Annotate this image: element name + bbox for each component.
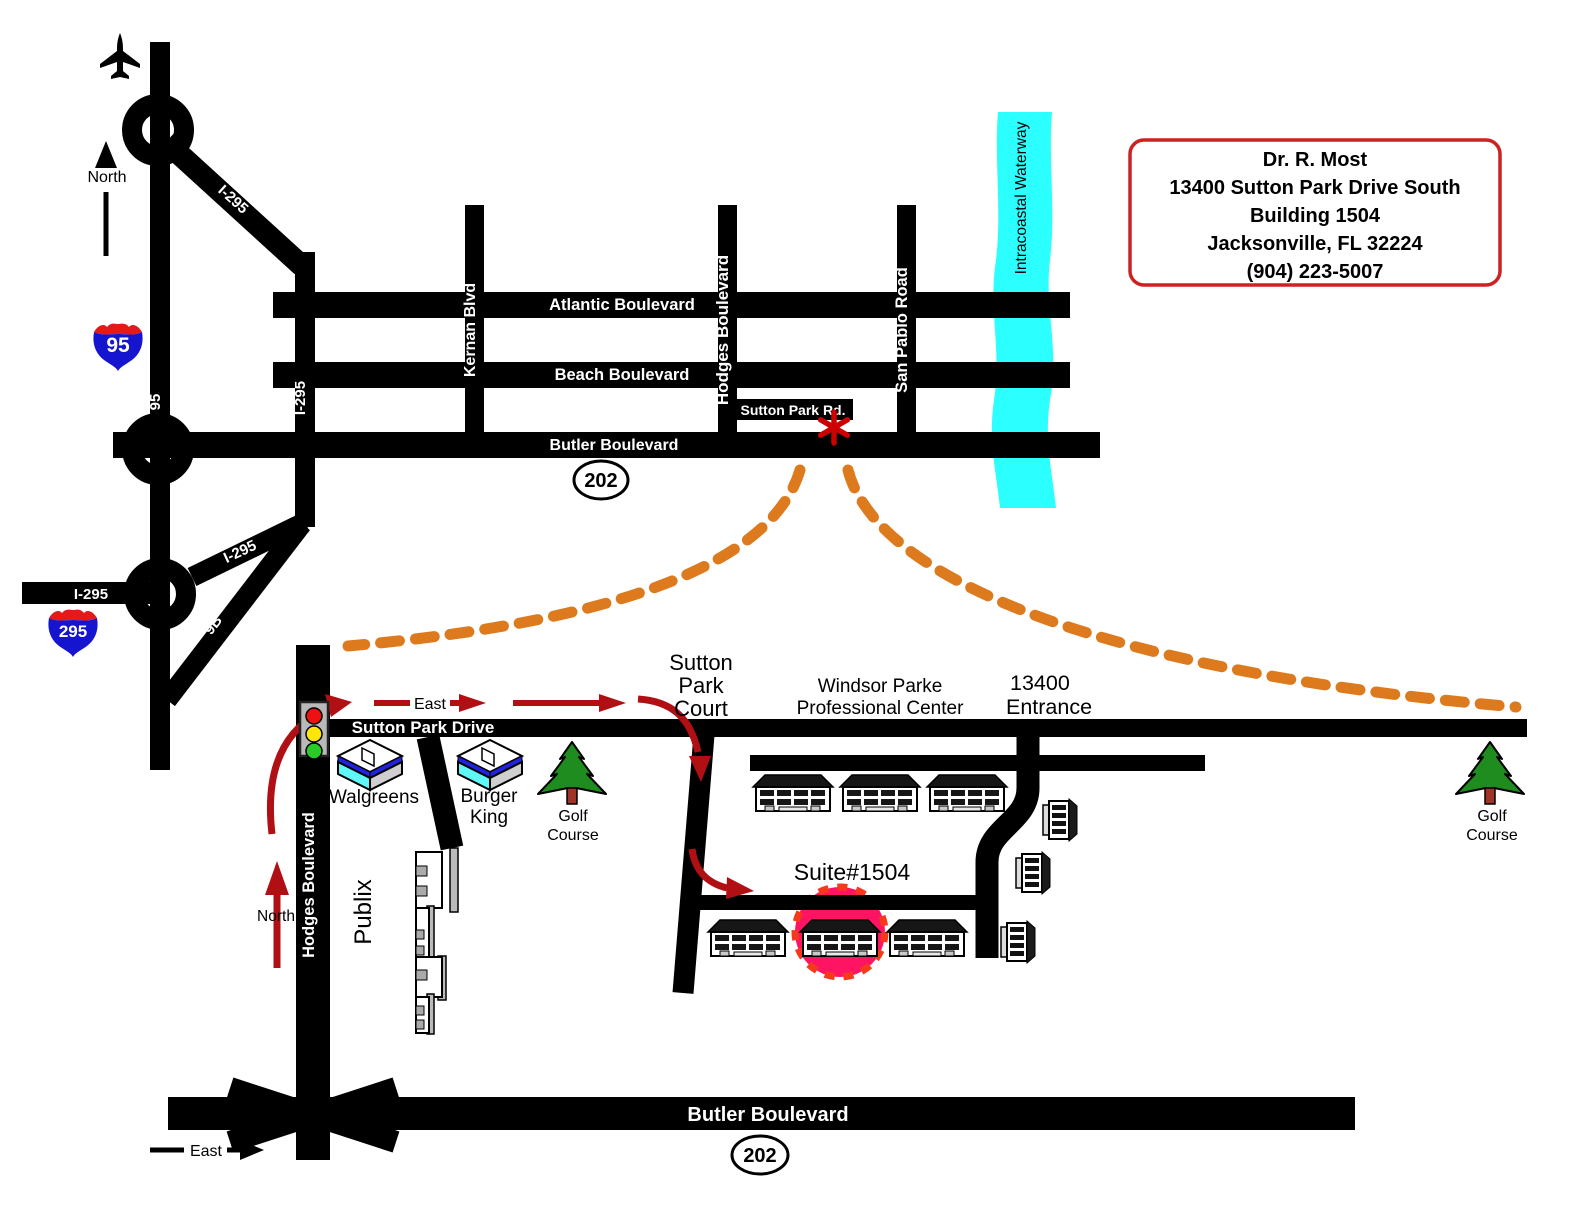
i95-road-label: 95: [147, 394, 164, 411]
i295-shield-number: 295: [59, 622, 87, 641]
san-pablo-road-label: San Pablo Road: [893, 267, 911, 393]
sutton-park-drive-label: Sutton Park Drive: [352, 718, 495, 737]
road-windsor-parke-internal-2: [690, 895, 988, 910]
burger-king-label-1: Burger: [460, 786, 518, 807]
info-doctor-name: Dr. R. Most: [1263, 149, 1368, 171]
i95-shield-number: 95: [106, 334, 130, 357]
directions-map: North 95 295 Atlantic Boulevard Beach Bo…: [0, 0, 1582, 1222]
entrance-label-2: Entrance: [1006, 695, 1092, 719]
butler-boulevard-lower-label: Butler Boulevard: [687, 1104, 848, 1126]
windsor-parke-label-2: Professional Center: [797, 698, 965, 719]
north-label: North: [87, 169, 126, 186]
golf-course-left-label-1: Golf: [558, 808, 588, 825]
east-label-top: East: [414, 696, 447, 713]
route-202-shield-upper: 202: [574, 461, 628, 499]
route-202-shield-lower: 202: [732, 1136, 788, 1174]
golf-course-right-label-2: Course: [1466, 827, 1518, 844]
traffic-light-red: [306, 708, 322, 724]
sutton-park-rd-label: Sutton Park Rd.: [740, 402, 845, 418]
info-building: Building 1504: [1250, 205, 1381, 227]
entrance-label-1: 13400: [1010, 671, 1070, 695]
office-building-small: [1016, 852, 1050, 894]
route-202-lower-label: 202: [743, 1145, 776, 1167]
east-label-bottom: East: [190, 1143, 223, 1160]
office-building: [753, 775, 833, 811]
info-city: Jacksonville, FL 32224: [1207, 233, 1423, 255]
beach-boulevard-label: Beach Boulevard: [555, 366, 690, 384]
hodges-boulevard-lower-label: Hodges Boulevard: [300, 812, 318, 958]
kernan-blvd-label: Kernan Blvd: [462, 283, 479, 377]
route-202-upper-label: 202: [584, 470, 617, 492]
office-building-small: [1043, 799, 1077, 841]
golf-course-right-label-1: Golf: [1477, 808, 1507, 825]
map-svg: North 95 295 Atlantic Boulevard Beach Bo…: [0, 0, 1582, 1222]
atlantic-boulevard-label: Atlantic Boulevard: [549, 296, 695, 314]
publix-label: Publix: [350, 879, 377, 944]
office-building: [840, 775, 920, 811]
traffic-light-icon: [300, 702, 328, 759]
walgreens-label: Walgreens: [329, 787, 419, 808]
sutton-park-court-label-3: Court: [674, 696, 728, 721]
info-phone: (904) 223-5007: [1247, 261, 1384, 283]
suite-1504-label: Suite#1504: [794, 859, 911, 885]
north-label-detail: North: [257, 908, 295, 925]
burger-king-label-2: King: [470, 807, 508, 828]
sutton-park-court-label-1: Sutton: [669, 650, 733, 675]
office-building: [887, 920, 967, 956]
traffic-light-yellow: [306, 726, 322, 742]
golf-course-left-label-2: Course: [547, 827, 599, 844]
butler-boulevard-upper-label: Butler Boulevard: [550, 437, 679, 454]
office-building-small: [1001, 921, 1035, 963]
windsor-parke-label-1: Windsor Parke: [818, 676, 943, 697]
intracoastal-waterway-label: Intracoastal Waterway: [1013, 121, 1030, 274]
road-windsor-parke-internal-1: [750, 755, 1205, 771]
office-building: [708, 920, 788, 956]
office-building-suite-1504: [800, 920, 880, 956]
i295-vertical-label: I-295: [292, 381, 309, 415]
info-address: 13400 Sutton Park Drive South: [1169, 177, 1460, 199]
sutton-park-court-label-2: Park: [678, 673, 724, 698]
office-building: [927, 775, 1007, 811]
i295-west-stub-label: I-295: [74, 586, 108, 603]
traffic-light-green: [306, 743, 322, 759]
office-info-box: Dr. R. Most 13400 Sutton Park Drive Sout…: [1130, 140, 1500, 285]
hodges-boulevard-upper-label: Hodges Boulevard: [713, 255, 732, 405]
